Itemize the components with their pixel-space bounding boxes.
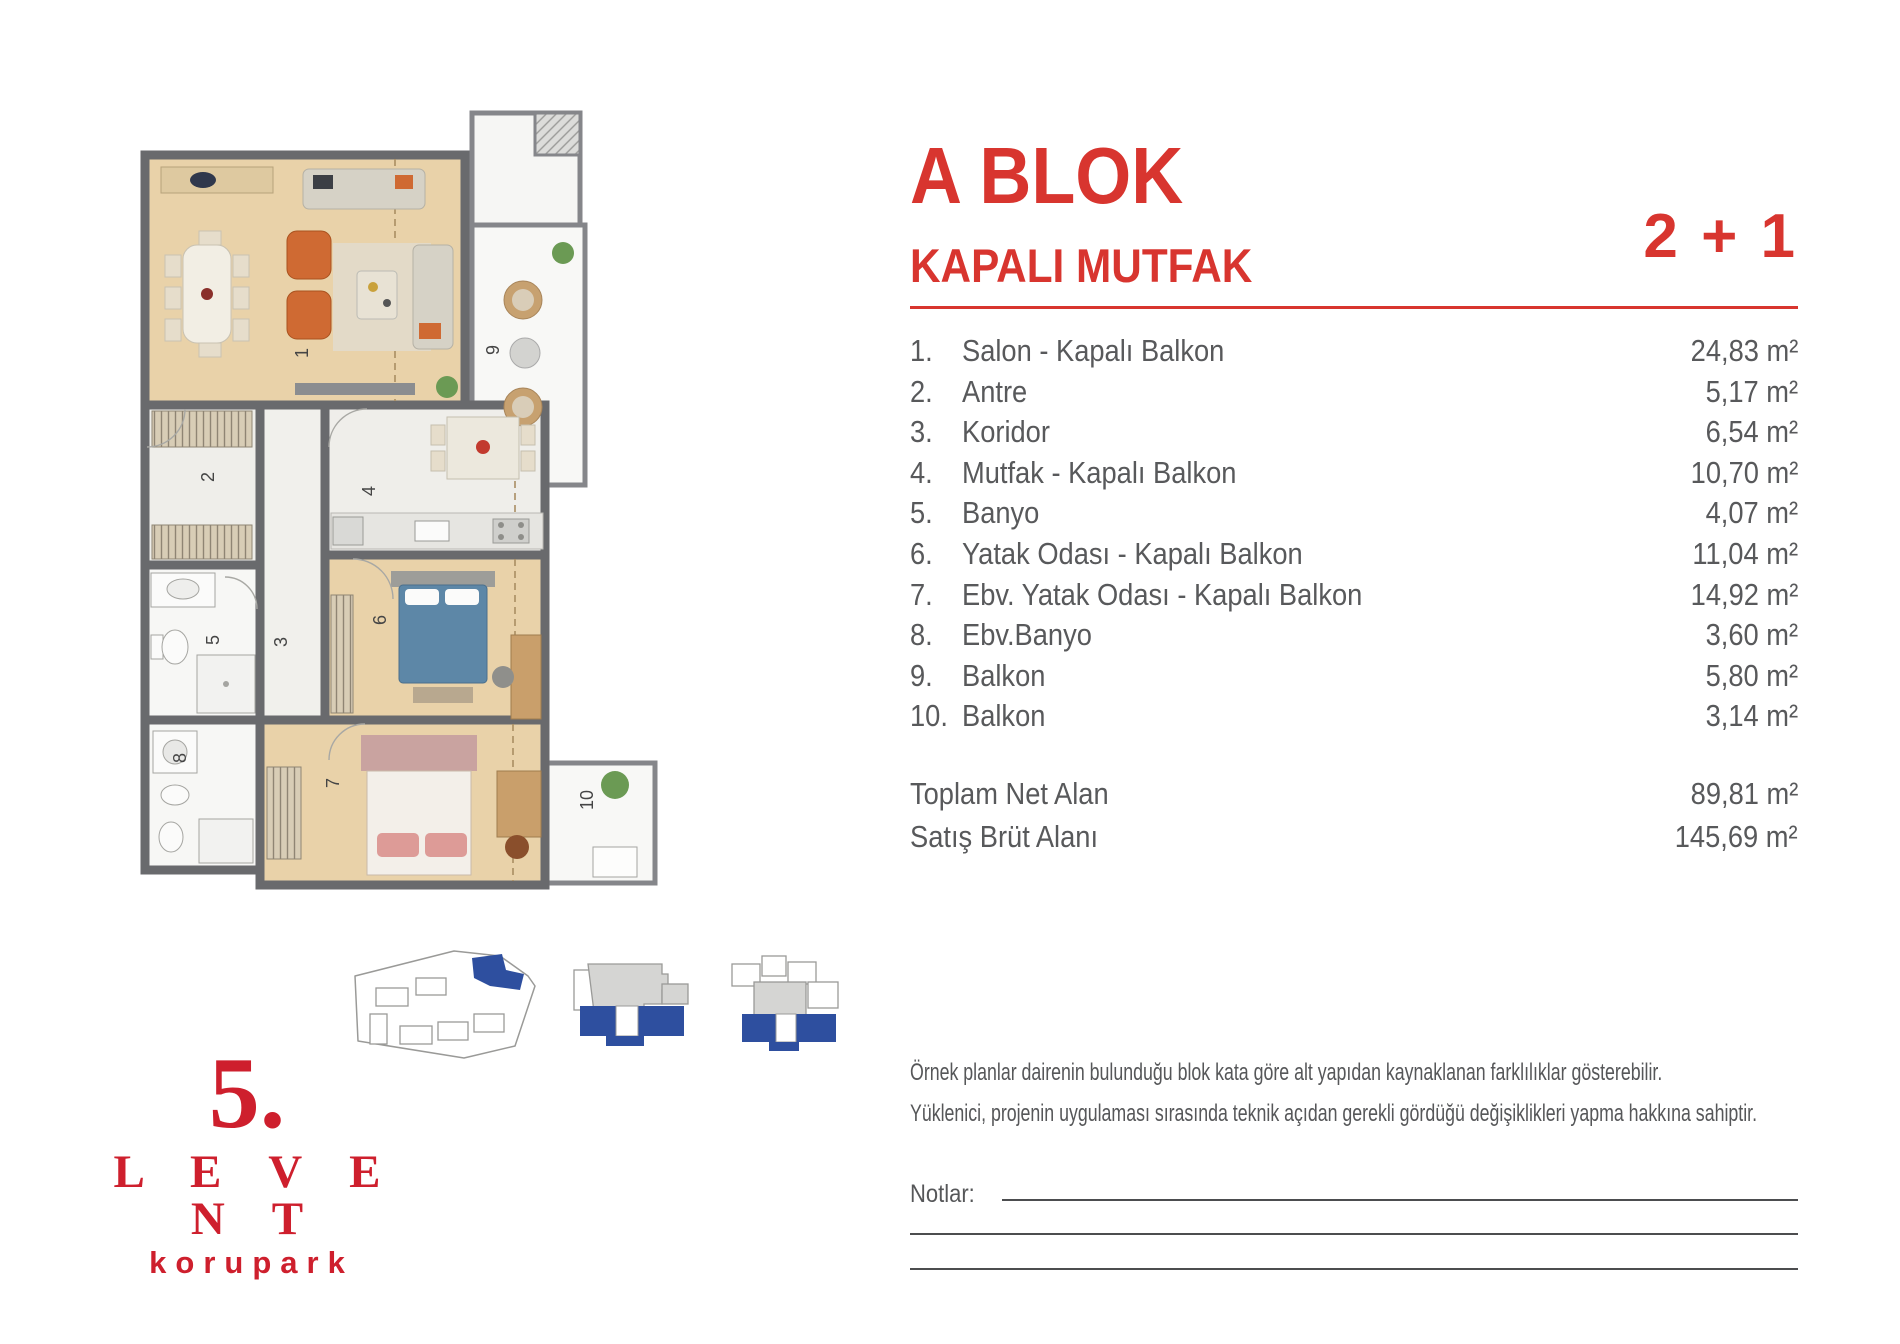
room-row: 8. Ebv.Banyo 3,60 m² — [910, 613, 1798, 654]
room-name: Banyo — [962, 495, 1039, 531]
room-label-9: 9 — [483, 345, 503, 355]
room-row: 5. Banyo 4,07 m² — [910, 491, 1798, 532]
unit-type-badge: 2 + 1 — [1643, 206, 1798, 268]
total-value: 145,69 m² — [1675, 819, 1798, 855]
bench — [413, 687, 473, 703]
room-area: 11,04 m² — [1692, 536, 1798, 572]
armchair — [287, 231, 331, 279]
total-label: Satış Brüt Alanı — [910, 819, 1098, 855]
title-divider — [910, 306, 1798, 309]
room-area: 4,07 m² — [1706, 495, 1798, 531]
room-label-1: 1 — [292, 348, 312, 358]
decor-bowl — [190, 172, 216, 188]
stove — [493, 519, 529, 543]
desk — [511, 635, 541, 719]
block-footprint-diagram-2 — [722, 952, 857, 1058]
logo: 5. L E V E N T korupark — [92, 1046, 402, 1278]
room-number: 5. — [910, 495, 933, 531]
palm-plant — [601, 771, 629, 799]
logo-number: 5. — [92, 1046, 402, 1143]
disclaimer-line-1: Örnek planlar dairenin bulunduğu blok ka… — [910, 1056, 1662, 1090]
room-number: 2. — [910, 374, 933, 410]
room-number: 10. — [910, 698, 948, 734]
sink — [415, 521, 449, 541]
room-label-8: 8 — [170, 753, 190, 763]
room-area: 3,14 m² — [1706, 698, 1798, 734]
room-label-4: 4 — [359, 486, 379, 496]
bowl — [476, 440, 490, 454]
armchair — [287, 291, 331, 339]
bed-canopy — [361, 735, 477, 771]
logo-name: L E V E N T — [110, 1149, 402, 1243]
basin — [167, 579, 199, 599]
toilet — [159, 822, 183, 852]
desk-chair — [505, 835, 529, 859]
toilet — [162, 630, 188, 664]
desk-chair — [492, 666, 514, 688]
room-area: 10,70 m² — [1690, 455, 1798, 491]
room-label-5: 5 — [203, 635, 223, 645]
room-row: 4. Mutfak - Kapalı Balkon 10,70 m² — [910, 451, 1798, 492]
room-name: Ebv.Banyo — [962, 617, 1092, 653]
room-area: 14,92 m² — [1690, 577, 1798, 613]
notes-line-1 — [1002, 1199, 1798, 1201]
brochure-page: { "header": { "block_title": "A BLOK", "… — [0, 0, 1900, 1344]
room-number: 8. — [910, 617, 933, 653]
room-label-6: 6 — [370, 615, 390, 625]
room-area: 3,60 m² — [1706, 617, 1798, 653]
plant — [436, 376, 458, 398]
room-name: Mutfak - Kapalı Balkon — [962, 455, 1236, 491]
room-name: Balkon — [962, 698, 1045, 734]
bed-double — [367, 771, 471, 875]
room-row: 6. Yatak Odası - Kapalı Balkon 11,04 m² — [910, 532, 1798, 573]
stairwell-hatch — [535, 113, 580, 155]
block-footprint-diagram-1 — [566, 958, 704, 1054]
notes-label: Notlar: — [910, 1180, 984, 1209]
room-row: 7. Ebv. Yatak Odası - Kapalı Balkon 14,9… — [910, 573, 1798, 614]
room-label-2: 2 — [198, 472, 218, 482]
room-number: 1. — [910, 333, 933, 369]
room-name: Ebv. Yatak Odası - Kapalı Balkon — [962, 577, 1362, 613]
room-name: Koridor — [962, 414, 1050, 450]
room-area: 6,54 m² — [1706, 414, 1798, 450]
room-name: Salon - Kapalı Balkon — [962, 333, 1224, 369]
room-number: 9. — [910, 658, 933, 694]
room-number: 7. — [910, 577, 933, 613]
plant — [552, 242, 574, 264]
total-value: 89,81 m² — [1690, 776, 1798, 812]
shower — [199, 819, 253, 863]
table-centerpiece — [201, 288, 213, 300]
room-name: Yatak Odası - Kapalı Balkon — [962, 536, 1303, 572]
room-koridor — [260, 405, 325, 720]
room-list: 1. Salon - Kapalı Balkon 24,83 m² 2. Ant… — [910, 329, 1798, 735]
disclaimer: Örnek planlar dairenin bulunduğu blok ka… — [910, 1056, 1798, 1138]
room-label-3: 3 — [271, 637, 291, 647]
round-table — [510, 338, 540, 368]
room-number: 6. — [910, 536, 933, 572]
room-row: 3. Koridor 6,54 m² — [910, 410, 1798, 451]
room-row: 10. Balkon 3,14 m² — [910, 694, 1798, 735]
logo-subname: korupark — [101, 1247, 402, 1278]
notes-line-3 — [910, 1268, 1798, 1270]
room-area: 24,83 m² — [1690, 333, 1798, 369]
room-label-7: 7 — [323, 778, 343, 788]
room-name: Balkon — [962, 658, 1045, 694]
tv-unit — [295, 383, 415, 395]
room-name: Antre — [962, 374, 1027, 410]
desk — [497, 771, 541, 837]
room-row: 9. Balkon 5,80 m² — [910, 654, 1798, 695]
floor-plan: 1 2 3 4 5 6 7 8 9 10 — [95, 95, 660, 890]
room-area: 5,80 m² — [1706, 658, 1798, 694]
total-row: Satış Brüt Alanı 145,69 m² — [910, 815, 1798, 858]
room-number: 4. — [910, 455, 933, 491]
room-row: 2. Antre 5,17 m² — [910, 370, 1798, 411]
room-area: 5,17 m² — [1706, 374, 1798, 410]
basin — [161, 785, 189, 805]
room-number: 3. — [910, 414, 933, 450]
room-row: 1. Salon - Kapalı Balkon 24,83 m² — [910, 329, 1798, 370]
totals: Toplam Net Alan 89,81 m² Satış Brüt Alan… — [910, 772, 1798, 858]
notes-line-2 — [910, 1233, 1798, 1235]
disclaimer-line-2: Yüklenici, projenin uygulaması sırasında… — [910, 1097, 1757, 1131]
coffee-table — [357, 271, 397, 319]
fridge — [333, 517, 363, 545]
total-label: Toplam Net Alan — [910, 776, 1109, 812]
total-row: Toplam Net Alan 89,81 m² — [910, 772, 1798, 815]
room-label-10: 10 — [577, 790, 597, 810]
